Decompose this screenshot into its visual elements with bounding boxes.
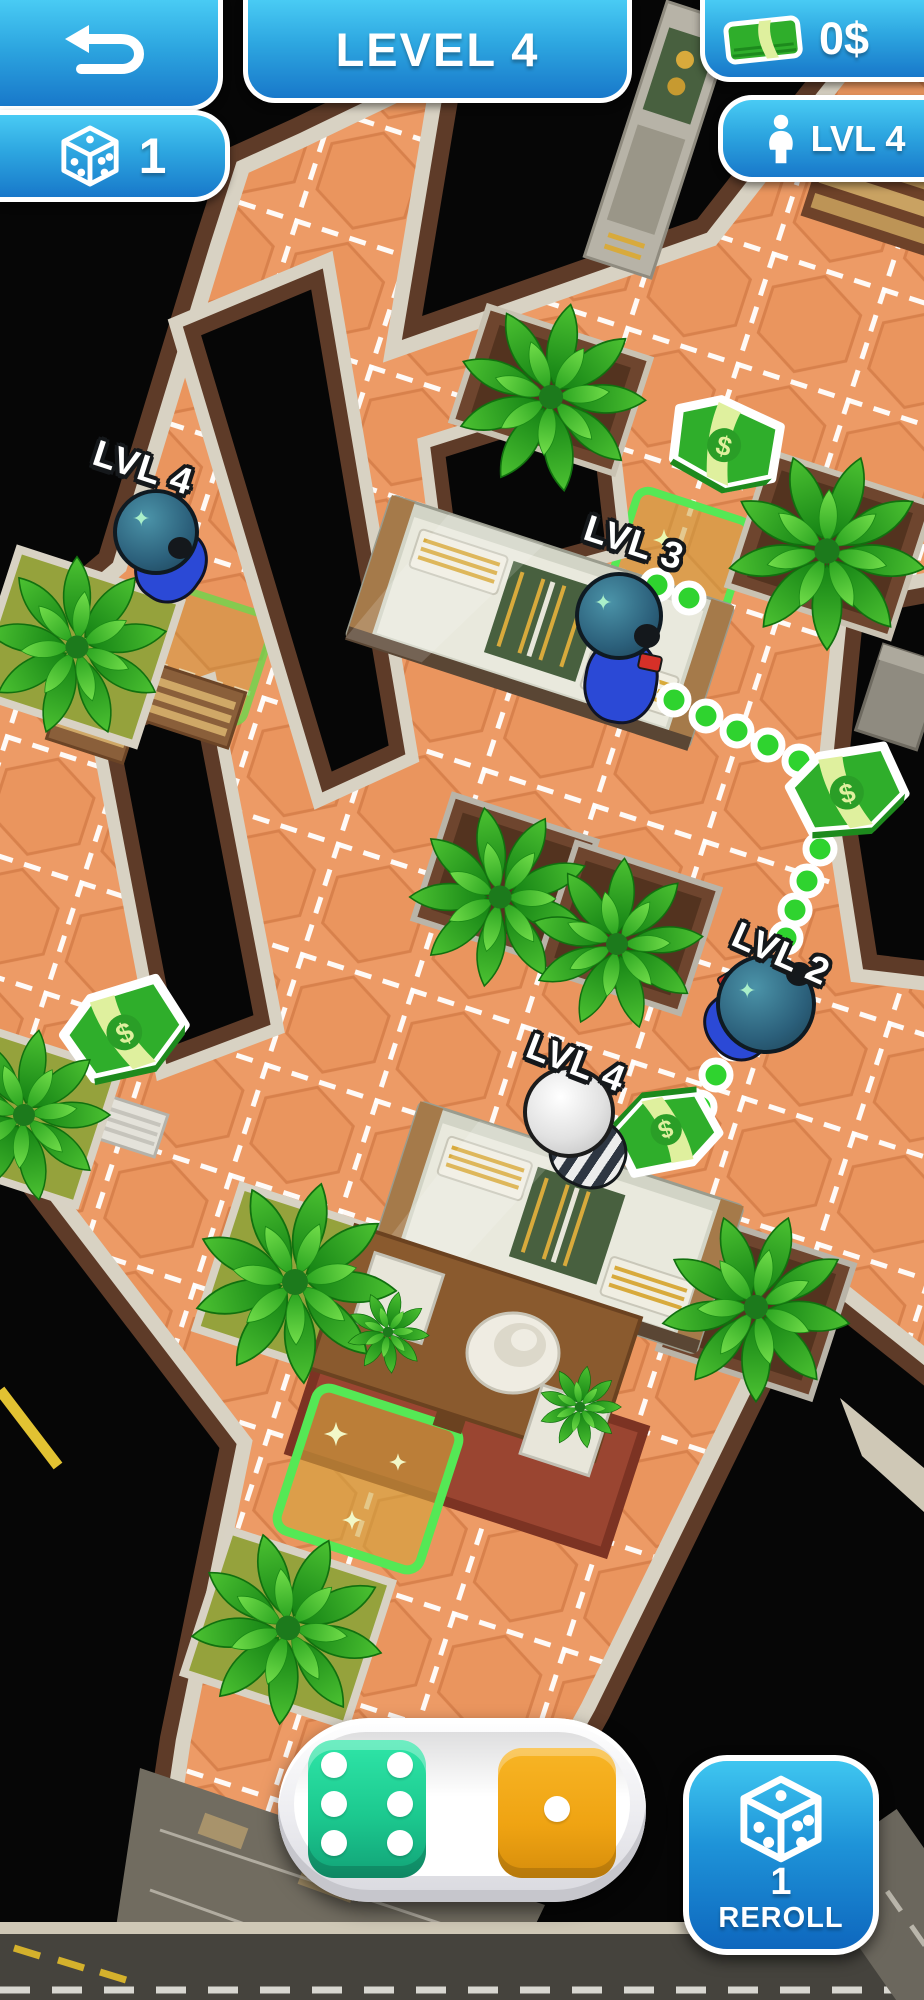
dice-icon [59,125,121,187]
sparkle-icon: ✦ [594,592,612,614]
reroll-label: REROLL [718,1903,843,1935]
reroll-dice-icon [737,1775,825,1863]
dice-counter: 1 [0,110,230,202]
statue [467,1313,559,1393]
reroll-count: 1 [770,1863,791,1903]
player-level-badge: LVL 4 [718,95,924,182]
die-orange[interactable] [498,1748,616,1878]
level-banner-label: LEVEL 4 [336,22,540,77]
sparkle-icon: ✦ [132,508,150,530]
player-level-label: LVL 4 [811,118,906,160]
reroll-button[interactable]: 1 REROLL [683,1755,879,1955]
game-screen: $ [0,0,924,2000]
police-cap [113,489,199,575]
level-banner: LEVEL 4 [243,0,632,103]
back-button[interactable] [0,0,223,111]
dice-count-value: 1 [139,127,167,185]
hair [168,537,192,559]
hair [634,624,660,648]
sparkle-icon: ✦ [738,980,756,1002]
person-icon [763,112,799,166]
money-counter: 0$ [700,0,924,82]
money-icon [721,9,805,69]
die-teal[interactable] [308,1740,426,1878]
back-arrow-icon [59,21,159,85]
money-value: 0$ [819,13,869,65]
dice-tray [278,1718,646,1902]
